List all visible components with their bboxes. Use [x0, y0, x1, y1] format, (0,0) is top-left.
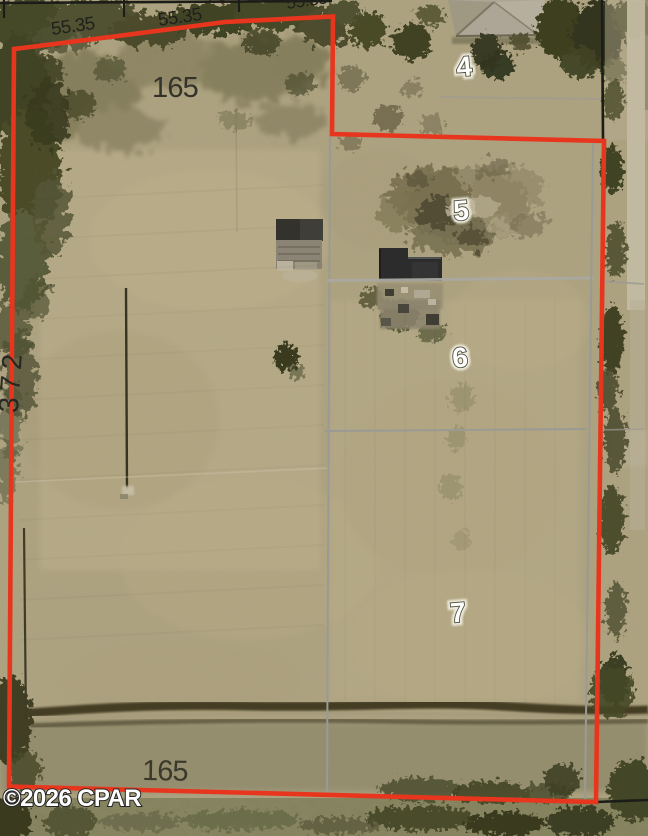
- svg-text:4: 4: [455, 50, 474, 82]
- svg-text:©2026 CPAR: ©2026 CPAR: [3, 785, 141, 812]
- svg-text:5: 5: [452, 194, 470, 226]
- svg-text:6: 6: [451, 341, 469, 373]
- svg-text:165: 165: [142, 755, 188, 788]
- svg-text:165: 165: [152, 72, 198, 104]
- svg-text:372: 372: [0, 347, 28, 414]
- svg-text:7: 7: [449, 596, 467, 628]
